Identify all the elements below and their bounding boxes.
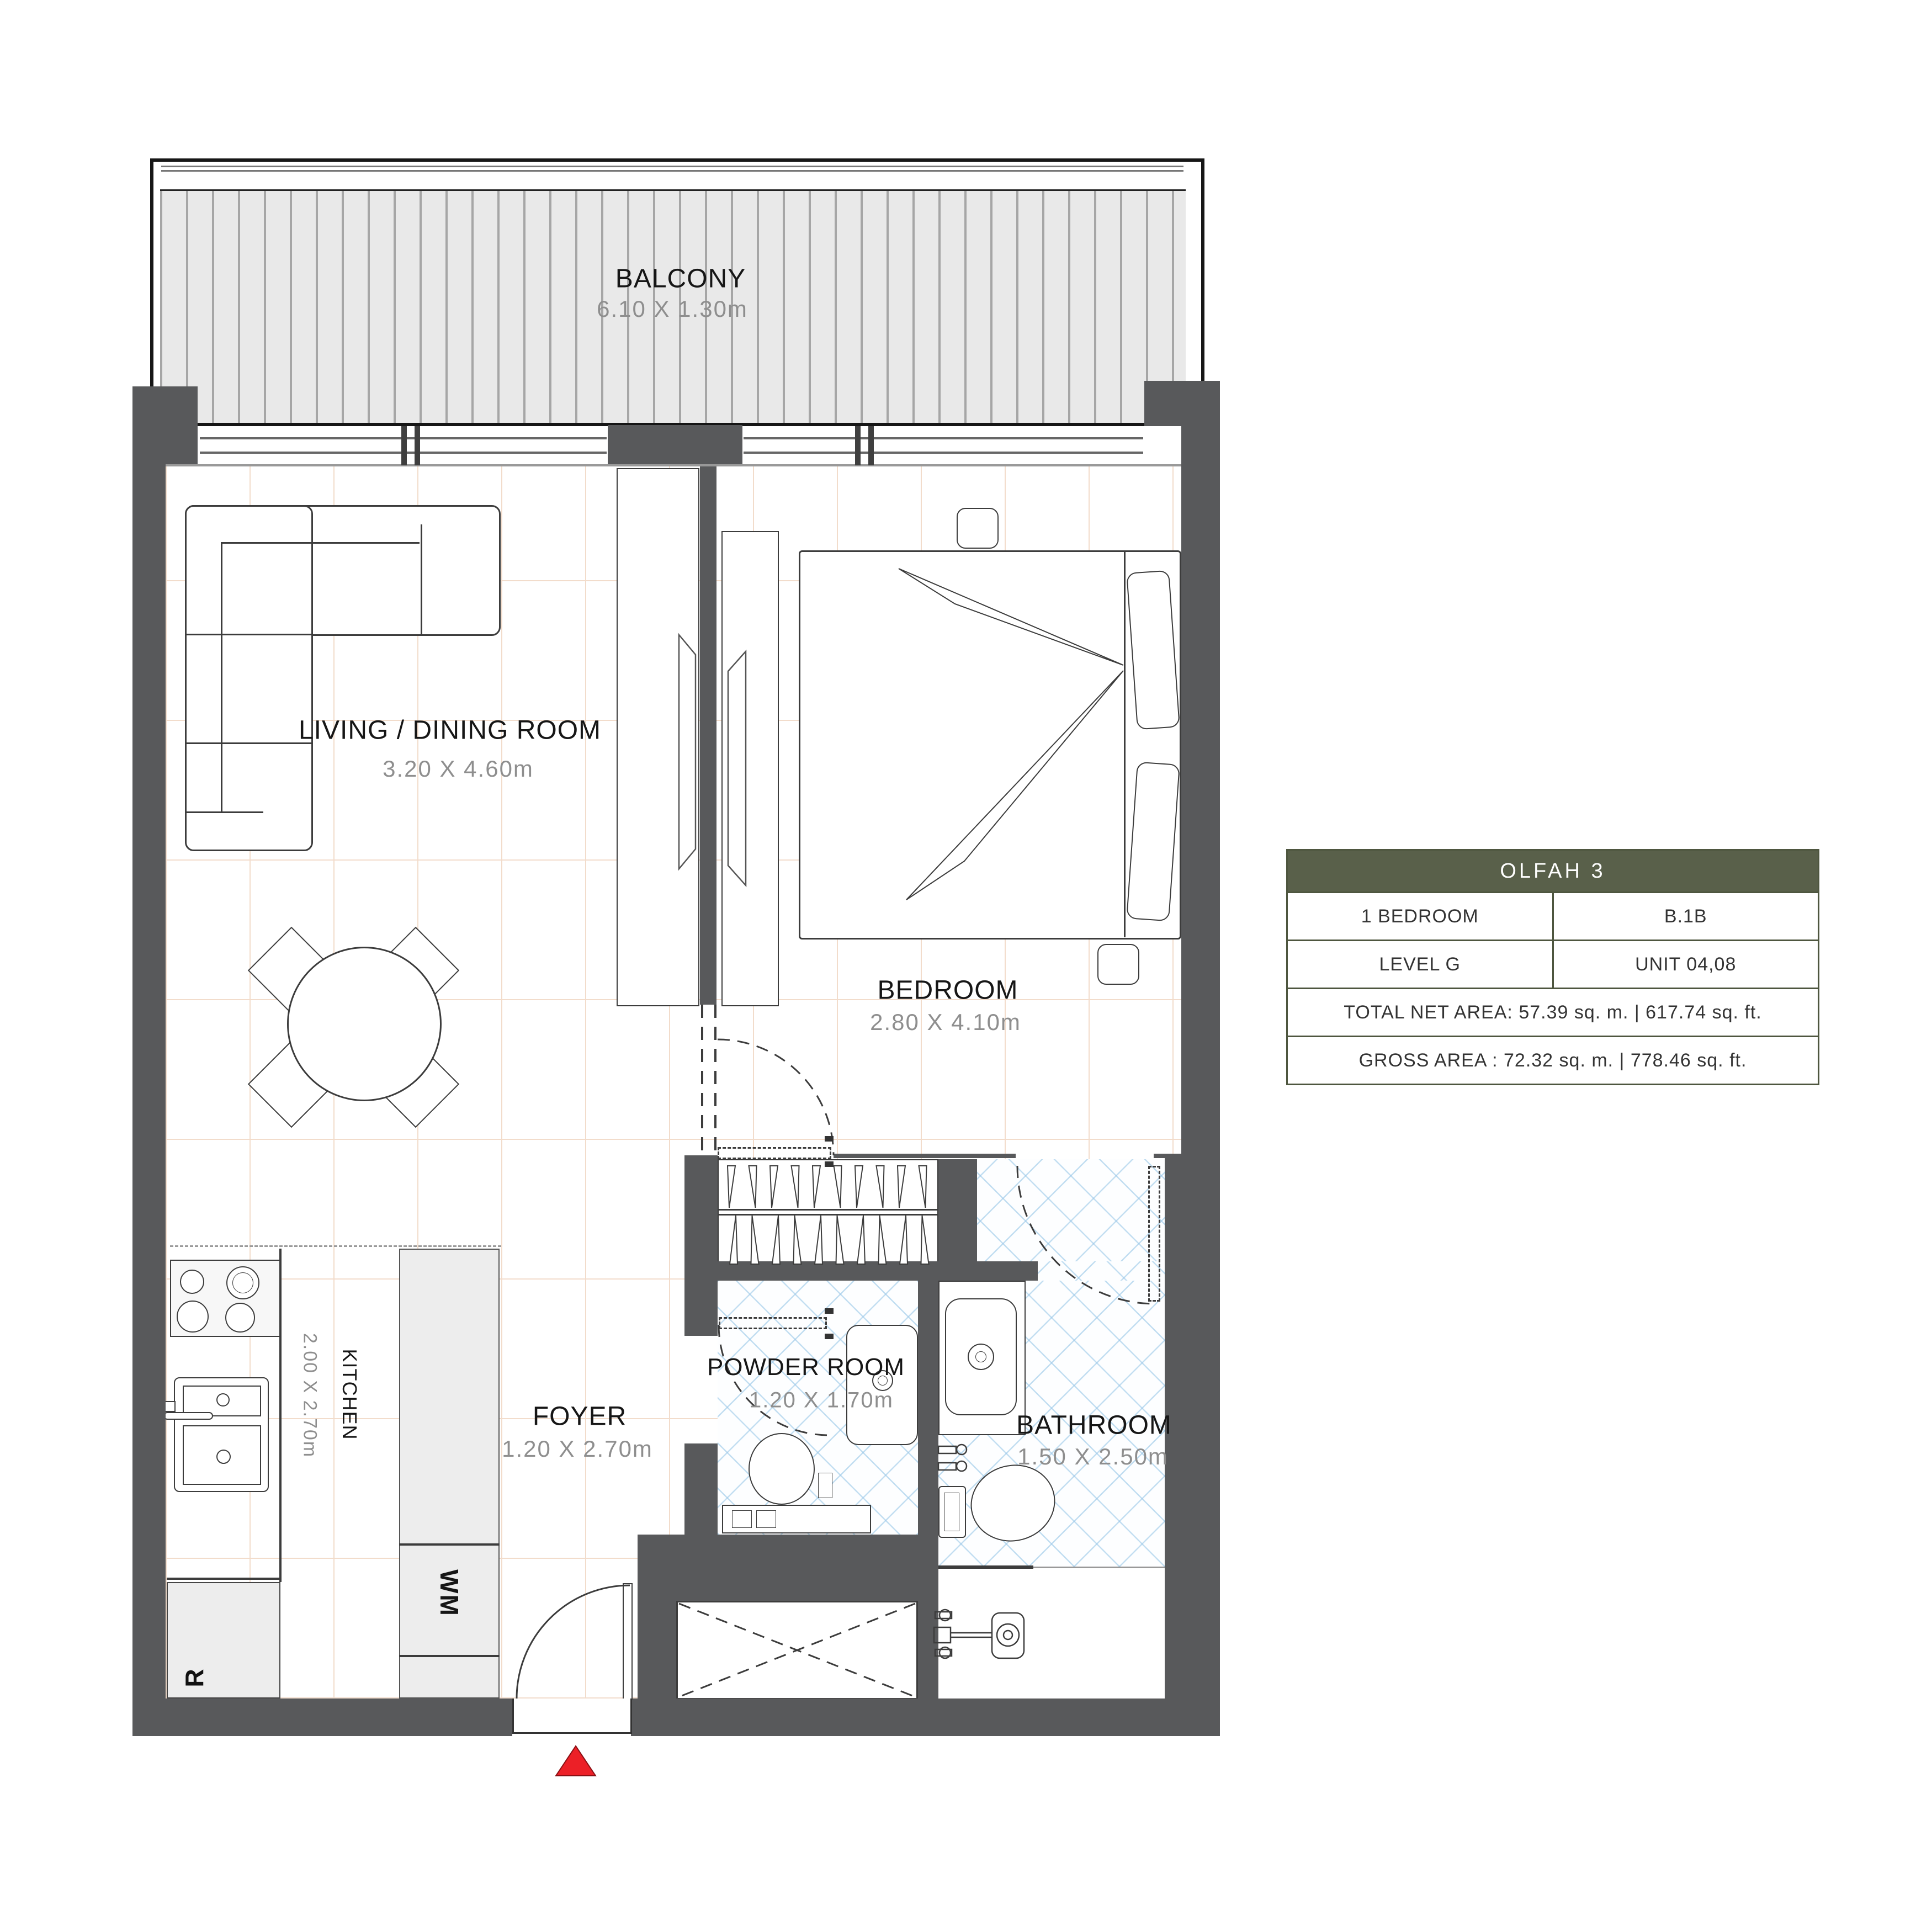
bathroom-dims: 1.50 X 2.50m: [1017, 1443, 1169, 1470]
service-shaft: [676, 1601, 918, 1700]
unit-info-header: OLFAH 3: [1288, 851, 1818, 891]
stove-burner-4: [225, 1303, 255, 1333]
unit-info-row-1: 1 BEDROOM B.1B: [1288, 891, 1818, 940]
bathroom-door-leaf: [1148, 1166, 1160, 1302]
balcony-rail-line-1: [161, 166, 1183, 167]
stove-burner-2-inner: [232, 1272, 253, 1293]
unit-info-row-2: LEVEL G UNIT 04,08: [1288, 940, 1818, 988]
window-mullion-living-2: [415, 426, 420, 465]
wall-wardrobe-right-block: [938, 1159, 977, 1264]
tv-console-living: [617, 468, 699, 1006]
sofa-back-line: [221, 542, 420, 544]
bathroom-label: BATHROOM: [1016, 1410, 1172, 1441]
wall-shaft-left: [638, 1601, 676, 1736]
powder-toilet: [749, 1433, 815, 1505]
bedroom-door-leaf: [718, 1147, 831, 1159]
kitchen-dims: 2.00 X 2.70m: [299, 1333, 321, 1458]
balcony-dims: 6.10 X 1.30m: [597, 296, 748, 322]
powder-room-label: POWDER ROOM: [707, 1354, 905, 1381]
floor-plan: BALCONY 6.10 X 1.30m LIVING / DINING ROO…: [0, 0, 1932, 1932]
nightstand-bottom: [1097, 944, 1139, 985]
wall-bathroom-left: [918, 1281, 938, 1699]
powder-shelf-item-1: [732, 1510, 752, 1528]
wall-left: [132, 386, 166, 1736]
entrance-threshold: [512, 1699, 632, 1734]
balcony-rail-line-2: [161, 170, 1183, 172]
balcony-label: BALCONY: [615, 264, 746, 294]
wall-powder-left-upper: [684, 1281, 718, 1336]
window-mullion-bedroom-2: [868, 426, 874, 465]
wardrobe-rail-1: [719, 1209, 937, 1211]
wall-bottom-right: [631, 1699, 1220, 1736]
refrigerator-divider: [167, 1578, 280, 1580]
living-dining-label: LIVING / DINING ROOM: [299, 715, 601, 746]
wardrobe: [718, 1159, 938, 1265]
sofa-cushion-split-2: [186, 742, 312, 744]
wall-bedroom-south-a: [834, 1154, 1016, 1158]
wall-corner-top-left: [132, 386, 198, 466]
kitchen-sink-2-drain: [216, 1450, 231, 1464]
unit-net-area-cell: TOTAL NET AREA: 57.39 sq. m. | 617.74 sq…: [1288, 989, 1818, 1036]
foyer-label: FOYER: [533, 1402, 627, 1432]
dining-table: [287, 947, 442, 1101]
washing-machine-label: WM: [434, 1569, 464, 1617]
tv-console-bedroom: [721, 531, 779, 1006]
pantry-strip: [399, 1249, 500, 1699]
unit-level-cell: LEVEL G: [1288, 941, 1552, 988]
entrance-marker-triangle: [556, 1746, 596, 1776]
bath-toilet-tank-inner: [944, 1493, 959, 1531]
bedroom-dims: 2.80 X 4.10m: [870, 1009, 1021, 1036]
sofa-armrest-line: [186, 811, 263, 813]
window-glass-bedroom-2: [744, 452, 1143, 454]
sofa-chaise-line: [421, 524, 422, 635]
bathroom-floor-connector: [1038, 1261, 1165, 1283]
wall-shaft-top: [638, 1535, 918, 1601]
unit-gross-area-cell: GROSS AREA : 72.32 sq. m. | 778.46 sq. f…: [1288, 1037, 1818, 1084]
sofa-cushion-split-1: [186, 634, 312, 635]
window-mullion-bedroom-1: [855, 426, 861, 465]
kitchen-faucet-lever: [163, 1412, 213, 1420]
sofa-vertical-section: [185, 505, 313, 851]
window-mullion-living-1: [401, 426, 407, 465]
wall-partition-stub: [700, 466, 716, 1005]
wall-bedroom-south-b: [1154, 1154, 1181, 1158]
wall-top-middle: [608, 425, 742, 466]
bed-headboard-line: [1124, 551, 1126, 937]
unit-gross-area-row: GROSS AREA : 72.32 sq. m. | 778.46 sq. f…: [1288, 1036, 1818, 1084]
kitchen-label: KITCHEN: [338, 1349, 361, 1440]
wall-right: [1181, 381, 1220, 1736]
pantry-divider-2: [399, 1655, 500, 1657]
refrigerator-label: R: [179, 1669, 209, 1687]
shower-screen-cont: [1033, 1567, 1165, 1568]
bathroom-floor-nook: [977, 1159, 1165, 1264]
kitchen-upper-cabinet-dashed: [170, 1245, 501, 1247]
powder-door-leaf: [719, 1317, 827, 1329]
living-dining-dims: 3.20 X 4.60m: [383, 756, 534, 782]
unit-code-cell: B.1B: [1552, 893, 1818, 940]
wall-powder-top-band: [684, 1261, 1038, 1281]
unit-number-cell: UNIT 04,08: [1552, 941, 1818, 988]
stove-burner-1: [180, 1270, 204, 1294]
powder-accessory: [818, 1473, 832, 1498]
window-sill-line: [166, 464, 1181, 466]
shower-screen: [938, 1565, 1033, 1569]
sofa-side-line: [221, 542, 222, 813]
foyer-dims: 1.20 X 2.70m: [502, 1436, 653, 1462]
bedroom-label: BEDROOM: [877, 975, 1018, 1006]
wardrobe-rail-2: [719, 1214, 937, 1216]
unit-net-area-row: TOTAL NET AREA: 57.39 sq. m. | 617.74 sq…: [1288, 988, 1818, 1036]
stove-burner-3: [177, 1301, 209, 1333]
bath-faucet-inner: [975, 1351, 986, 1362]
pantry-divider-1: [399, 1543, 500, 1546]
unit-type-cell: 1 BEDROOM: [1288, 893, 1552, 940]
nightstand-top: [957, 508, 999, 549]
window-glass-bedroom-1: [744, 437, 1143, 439]
powder-shelf-item-2: [756, 1510, 776, 1528]
wall-bottom-left: [132, 1699, 512, 1736]
entrance-door-leaf: [623, 1583, 633, 1700]
powder-room-dims: 1.20 X 1.70m: [749, 1388, 894, 1413]
kitchen-sink-1-drain: [216, 1393, 230, 1406]
balcony-deck-edge: [160, 189, 1186, 191]
shower-floor: [938, 1568, 1165, 1699]
unit-info-table: OLFAH 3 1 BEDROOM B.1B LEVEL G UNIT 04,0…: [1286, 849, 1819, 1085]
